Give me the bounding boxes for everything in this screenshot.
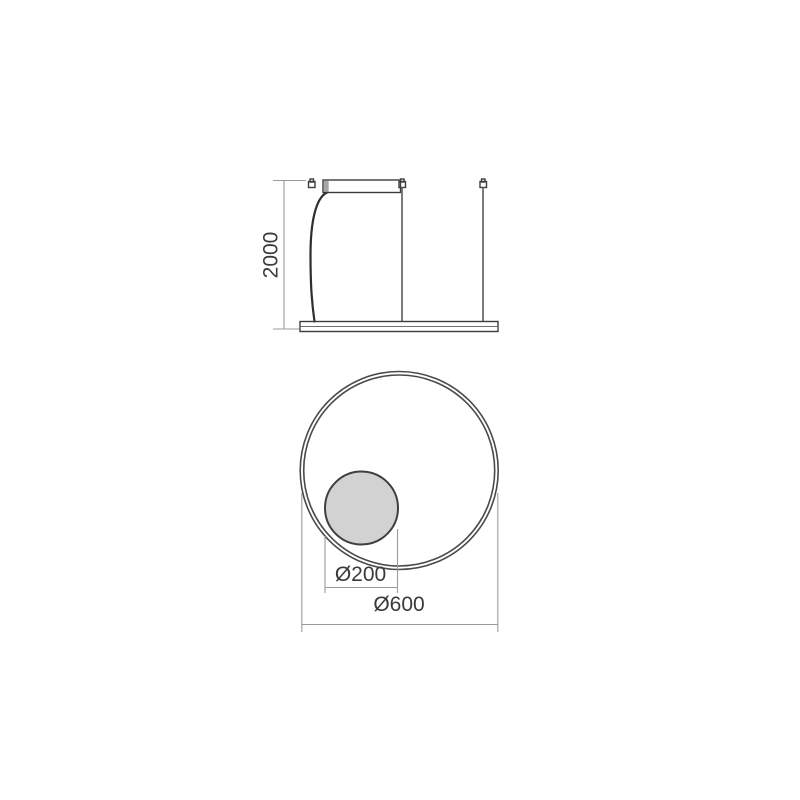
canopy-body (323, 180, 401, 193)
ceiling-canopy (323, 180, 401, 193)
power-cable (311, 193, 328, 322)
technical-drawing-page: 2000 (0, 0, 800, 800)
ring-inner-contour (304, 375, 495, 566)
dimension-label-200: Ø200 (335, 563, 386, 586)
bar-diffuser-stripe (301, 327, 497, 330)
side-elevation-view: 2000 (260, 179, 499, 332)
ring-profile-bar (300, 322, 498, 332)
canopy-left-edge (324, 181, 329, 192)
outer-ring (300, 372, 498, 570)
ceiling-bracket-left (309, 179, 316, 188)
height-dimension-2000: 2000 (260, 181, 309, 330)
dimension-label-600: Ø600 (373, 593, 424, 616)
pendant-lamp-drawing: 2000 (0, 0, 800, 800)
ring-outer-contour (300, 372, 498, 570)
sphere-diffuser (325, 472, 398, 545)
dimension-label-2000: 2000 (260, 232, 283, 279)
ceiling-bracket-right (480, 179, 487, 188)
front-view: Ø600 Ø200 (300, 372, 498, 633)
